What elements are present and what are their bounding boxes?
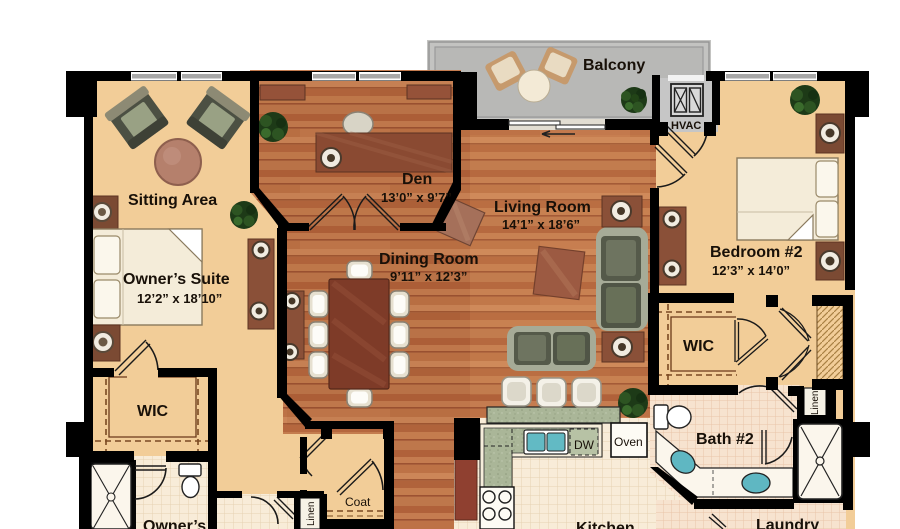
svg-text:DW: DW (574, 438, 595, 452)
svg-text:Owner’s Suite: Owner’s Suite (123, 271, 230, 288)
svg-text:12’3” x 14’0”: 12’3” x 14’0” (712, 263, 790, 278)
svg-text:12’2” x 18’10”: 12’2” x 18’10” (137, 291, 222, 306)
svg-text:Laundry: Laundry (756, 517, 819, 529)
svg-text:Oven: Oven (614, 435, 643, 449)
svg-text:Linen: Linen (306, 502, 317, 526)
svg-text:Den: Den (402, 171, 432, 188)
svg-text:Owner’s: Owner’s (143, 518, 206, 529)
svg-text:13’0” x 9’7”: 13’0” x 9’7” (381, 190, 452, 205)
svg-text:HVAC: HVAC (671, 120, 701, 132)
svg-text:14’1” x 18’6”: 14’1” x 18’6” (502, 217, 580, 232)
svg-text:Kitchen: Kitchen (576, 520, 635, 529)
svg-text:WIC: WIC (683, 338, 715, 355)
svg-text:Balcony: Balcony (583, 57, 645, 74)
svg-text:Linen: Linen (810, 391, 821, 415)
svg-text:Dining Room: Dining Room (379, 251, 479, 268)
svg-text:Sitting Area: Sitting Area (128, 192, 217, 209)
svg-text:Bath #2: Bath #2 (696, 431, 754, 448)
svg-text:9’11” x 12’3”: 9’11” x 12’3” (390, 269, 467, 284)
svg-text:WIC: WIC (137, 403, 169, 420)
svg-text:Coat: Coat (345, 495, 371, 509)
svg-text:Bedroom #2: Bedroom #2 (710, 244, 803, 261)
svg-text:Living Room: Living Room (494, 199, 591, 216)
